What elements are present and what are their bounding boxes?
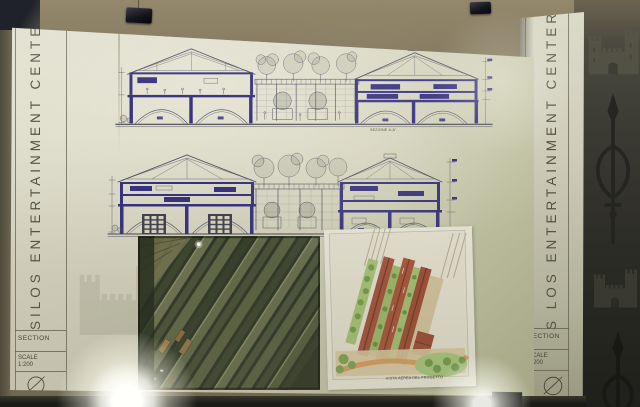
left-building [128,49,255,124]
castle-watermark-icon [590,262,640,318]
north-arrow-icon [541,374,565,398]
board-title: S LOS ENTERTAINMENT CENTER [544,20,564,330]
board-title: SILOS ENTERTAINMENT CENTER [28,38,48,330]
board-tab [492,392,522,407]
strip-divider [15,351,66,352]
section-label: SECTION [18,335,50,342]
binder-clip [470,2,491,15]
board-tab [110,399,125,407]
section-caption: SEZIONE A-A' [370,128,396,132]
strip-divider [15,330,66,331]
pergola-court [255,51,359,121]
scale-label: SCALE [18,355,38,362]
strip-divider [15,371,66,372]
finial-motif-icon [590,86,636,256]
presentation-board-left: SILOS ENTERTAINMENT CENTER SECTION SCALE… [10,24,534,396]
finial-motif-icon [598,330,638,407]
section-drawing-upper [102,40,506,140]
photo-dark-edge [138,236,154,390]
dimension-line-right [482,58,492,125]
castle-watermark-icon [584,24,640,84]
right-building [338,154,442,234]
strip-rule-right [568,12,569,400]
right-building [355,46,479,123]
pergola-court [252,153,347,230]
project-rendering [324,226,476,390]
project-rendering-sheet: VISTA AEREA DEL PROGETTO [324,226,476,390]
corner-shadow [0,0,40,30]
scene: S LOS ENTERTAINMENT CENTER SECTION SCALE… [0,0,640,407]
binder-clip [126,7,153,23]
dimension-line-right [447,158,457,234]
wall-left-edge [0,0,12,407]
strip-rule-left [15,24,16,396]
aerial-photograph [138,236,320,390]
left-building [118,155,256,234]
dark-right-panel [574,0,640,407]
scale-value: 1:200 [18,362,33,369]
strip-rule-right [66,24,67,396]
